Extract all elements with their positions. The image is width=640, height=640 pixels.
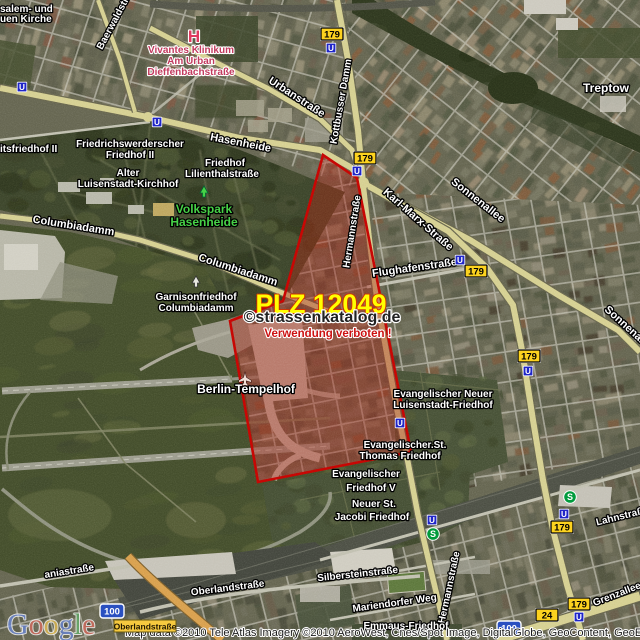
svg-text:Garnisonfriedhof: Garnisonfriedhof	[155, 292, 237, 303]
svg-text:Am Urban: Am Urban	[167, 56, 215, 67]
svg-text:U: U	[154, 118, 160, 127]
svg-text:179: 179	[521, 351, 537, 362]
svg-text:Hasenheide: Hasenheide	[170, 215, 238, 229]
svg-text:U: U	[354, 167, 360, 176]
svg-text:Treptow: Treptow	[583, 81, 630, 95]
svg-text:uen Kirche: uen Kirche	[0, 14, 52, 25]
svg-text:U: U	[429, 516, 435, 525]
svg-text:Luisenstadt-Kirchhof: Luisenstadt-Kirchhof	[78, 179, 179, 190]
svg-text:179: 179	[571, 599, 587, 610]
svg-text:itsfriedhof II: itsfriedhof II	[0, 144, 57, 155]
svg-text:179: 179	[554, 522, 570, 533]
svg-text:179: 179	[357, 153, 373, 164]
svg-text:S: S	[430, 529, 436, 539]
svg-text:Evangelischer: Evangelischer	[332, 469, 400, 480]
svg-text:Neuer St.: Neuer St.	[352, 499, 396, 510]
svg-text:Friedrichswerderscher: Friedrichswerderscher	[76, 139, 184, 150]
svg-text:Volkspark: Volkspark	[176, 202, 233, 216]
svg-text:Verwendung verboten !: Verwendung verboten !	[264, 328, 391, 340]
svg-text:©strassenkatalog.de: ©strassenkatalog.de	[244, 309, 401, 326]
svg-text:Friedhof II: Friedhof II	[106, 150, 155, 161]
svg-text:U: U	[397, 419, 403, 428]
svg-text:100: 100	[104, 606, 120, 617]
svg-text:Lilienthalstraße: Lilienthalstraße	[185, 169, 259, 180]
svg-text:Vivantes Klinikum: Vivantes Klinikum	[148, 45, 234, 56]
svg-text:179: 179	[468, 266, 484, 277]
svg-text:179: 179	[324, 29, 340, 40]
svg-text:Luisenstadt-Friedhof: Luisenstadt-Friedhof	[393, 400, 493, 411]
svg-text:U: U	[19, 83, 25, 92]
svg-text:U: U	[561, 510, 567, 519]
svg-text:H: H	[188, 27, 200, 46]
svg-text:U: U	[525, 367, 531, 376]
svg-text:U: U	[576, 613, 582, 622]
svg-text:Columbiadamm: Columbiadamm	[158, 303, 233, 314]
svg-text:Oberlandstraße: Oberlandstraße	[114, 622, 177, 632]
svg-text:Alter: Alter	[117, 168, 140, 179]
svg-text:24: 24	[542, 610, 553, 621]
svg-text:Friedhof V: Friedhof V	[346, 483, 396, 494]
svg-text:U: U	[328, 44, 334, 53]
svg-text:Jacobi Friedhof: Jacobi Friedhof	[335, 512, 410, 523]
svg-text:Map data ©2010 Tele Atlas Ima: Map data ©2010 Tele Atlas Imagery ©2010 …	[125, 627, 640, 639]
svg-text:Dieffenbachstraße: Dieffenbachstraße	[147, 67, 235, 78]
svg-text:S: S	[567, 492, 573, 502]
svg-text:Evangelischer.St.: Evangelischer.St.	[364, 440, 447, 451]
svg-text:U: U	[457, 256, 463, 265]
svg-text:Thomas Friedhof: Thomas Friedhof	[359, 451, 441, 462]
svg-text:Friedhof: Friedhof	[205, 158, 246, 169]
svg-text:Google: Google	[7, 608, 95, 640]
svg-text:Evangelischer Neuer: Evangelischer Neuer	[394, 389, 493, 400]
